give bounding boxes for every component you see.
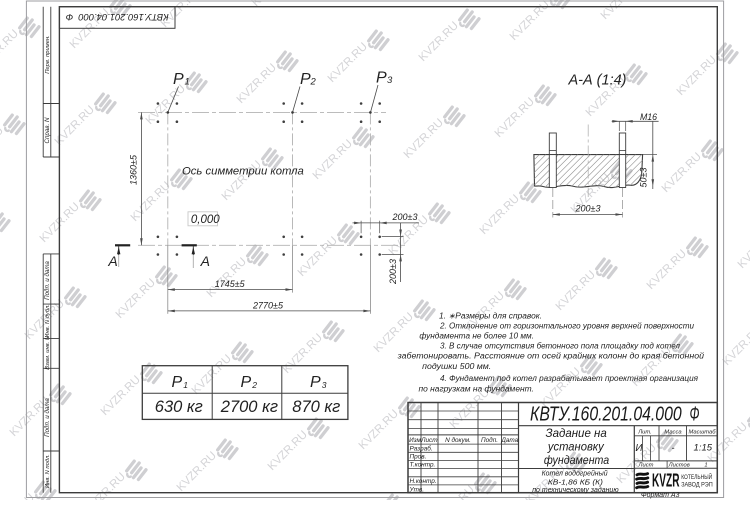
svg-text:1745±5: 1745±5	[215, 279, 246, 289]
svg-text:А: А	[107, 253, 117, 269]
svg-text:КОТЕЛЬНЫЙ: КОТЕЛЬНЫЙ	[681, 473, 712, 481]
svg-text:Ось симметрии котла: Ось симметрии котла	[182, 166, 304, 178]
svg-text:1:15: 1:15	[694, 442, 713, 453]
svg-text:1: 1	[185, 77, 190, 88]
svg-text:P: P	[376, 70, 387, 87]
svg-text:Разраб.: Разраб.	[410, 444, 433, 452]
svg-text:КВТУ.160.201.04.000: КВТУ.160.201.04.000	[530, 404, 682, 426]
svg-text:-: -	[672, 443, 675, 453]
svg-text:забетонировать. Расстояние от: забетонировать. Расстояние от осей крайн…	[397, 352, 705, 361]
svg-text:4. Фундамент под котел разраба: 4. Фундамент под котел разрабатывает про…	[440, 374, 699, 383]
svg-text:Дата: Дата	[500, 437, 518, 444]
svg-text:1360±5: 1360±5	[129, 154, 139, 185]
svg-text:КВТУ.160.201.04.000 Ф: КВТУ.160.201.04.000 Ф	[65, 11, 168, 22]
svg-text:Инв. N дубл.: Инв. N дубл.	[45, 304, 51, 338]
svg-text:2. Отклонение от горизонтально: 2. Отклонение от горизонтального уровня …	[439, 322, 695, 331]
svg-text:P: P	[172, 374, 183, 391]
svg-text:ЗАВОД РЭП: ЗАВОД РЭП	[681, 482, 713, 488]
svg-text:Масштаб: Масштаб	[688, 430, 716, 436]
svg-text:3: 3	[387, 75, 393, 86]
svg-text:P: P	[173, 71, 184, 88]
svg-text:Подп.: Подп.	[481, 436, 498, 444]
svg-text:50±3: 50±3	[638, 168, 648, 188]
svg-text:200±3: 200±3	[388, 259, 398, 285]
svg-text:Подп. и дата: Подп. и дата	[44, 398, 51, 437]
svg-text:по нагрузкам на фундамент.: по нагрузкам на фундамент.	[419, 385, 534, 394]
svg-text:Котел водогрейный: Котел водогрейный	[542, 469, 608, 477]
svg-text:3: 3	[322, 380, 327, 390]
svg-text:1: 1	[704, 462, 707, 468]
svg-text:N докум.: N докум.	[445, 436, 471, 444]
svg-text:Лист: Лист	[638, 462, 654, 468]
svg-text:0,000: 0,000	[191, 214, 220, 226]
svg-text:Формат А3: Формат А3	[641, 492, 680, 499]
svg-text:И: И	[635, 443, 643, 454]
svg-text:КВ-1,86 КБ (К): КВ-1,86 КБ (К)	[548, 480, 603, 487]
svg-text:Инв. N подл.: Инв. N подл.	[45, 454, 51, 488]
svg-text:KVZR: KVZR	[652, 470, 680, 490]
svg-text:200±3: 200±3	[392, 212, 418, 222]
svg-text:Пров.: Пров.	[410, 454, 427, 461]
svg-text:Задание на: Задание на	[546, 426, 608, 440]
svg-text:Масса: Масса	[664, 430, 682, 436]
svg-text:Т.контр.: Т.контр.	[410, 462, 436, 469]
svg-text:Справ. N: Справ. N	[44, 117, 51, 143]
svg-text:фундамента: фундамента	[544, 453, 610, 467]
svg-text:P: P	[241, 374, 252, 391]
svg-text:Утв.: Утв.	[409, 486, 425, 493]
svg-text:Перв. примен.: Перв. примен.	[45, 35, 51, 74]
svg-text:установку: установку	[547, 439, 605, 453]
svg-text:2: 2	[310, 77, 317, 88]
svg-text:P: P	[310, 374, 321, 391]
svg-text:Ф: Ф	[690, 404, 700, 426]
svg-text:по техническому заданию: по техническому заданию	[532, 486, 619, 494]
svg-text:Лист: Лист	[420, 437, 438, 444]
svg-text:2: 2	[251, 380, 257, 390]
svg-text:Лит.: Лит.	[637, 430, 652, 436]
svg-text:подушки 500 мм.: подушки 500 мм.	[422, 362, 491, 371]
svg-text:фундамента не более 10 мм.: фундамента не более 10 мм.	[419, 332, 534, 341]
svg-text:1: 1	[183, 380, 188, 390]
svg-text:Листов: Листов	[668, 462, 690, 468]
svg-text:Взам. инв. N: Взам. инв. N	[45, 335, 51, 370]
svg-text:1. ∗Размеры для справок.: 1. ∗Размеры для справок.	[439, 312, 542, 321]
svg-text:Н.контр.: Н.контр.	[410, 478, 437, 485]
svg-text:200±3: 200±3	[575, 203, 601, 213]
svg-text:P: P	[300, 71, 311, 88]
svg-text:3. В случае отсутствия бетонно: 3. В случае отсутствия бетонного пола пл…	[440, 342, 681, 351]
svg-text:630 кг: 630 кг	[155, 398, 203, 416]
svg-text:А-А (1:4): А-А (1:4)	[567, 73, 626, 89]
svg-text:М16: М16	[640, 112, 657, 122]
svg-text:2700 кг: 2700 кг	[220, 398, 278, 416]
svg-text:А: А	[200, 253, 210, 269]
svg-text:870 кг: 870 кг	[292, 398, 340, 416]
svg-text:2770±5: 2770±5	[252, 300, 284, 310]
svg-text:Подп. и дата: Подп. и дата	[44, 261, 51, 300]
